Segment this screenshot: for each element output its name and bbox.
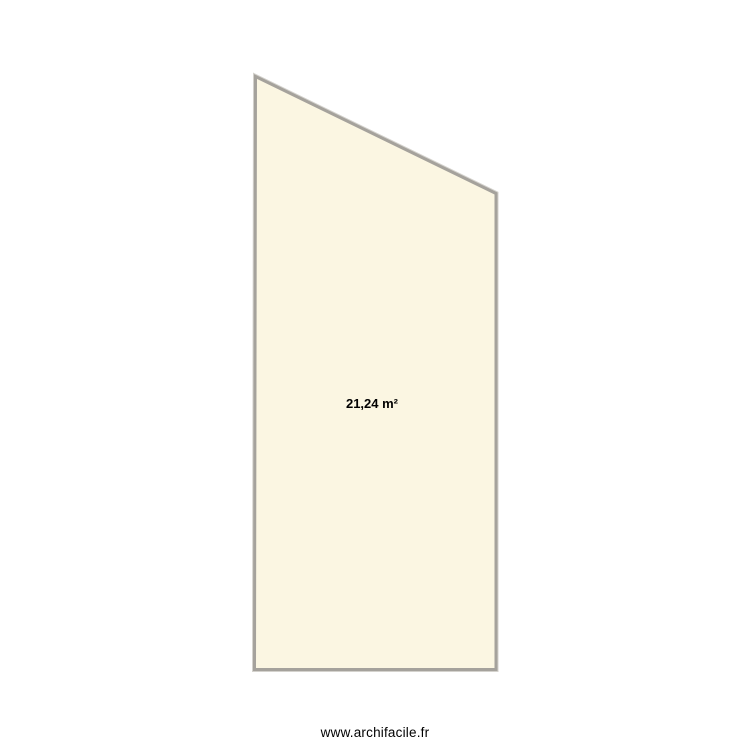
room-area-label: 21,24 m² — [346, 396, 399, 411]
floor-plan-page: 21,24 m² www.archifacile.fr — [0, 0, 750, 750]
watermark-url: www.archifacile.fr — [0, 725, 750, 740]
floor-plan-canvas: 21,24 m² — [0, 0, 750, 750]
room-shape[interactable] — [255, 77, 497, 670]
